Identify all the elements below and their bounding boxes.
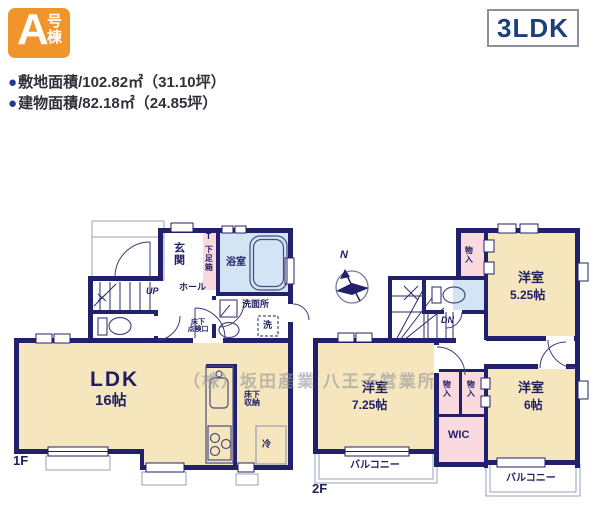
closet-door-a: [481, 378, 490, 389]
bedroom3-name-label: 洋室: [518, 381, 544, 395]
fridge-label: 冷: [262, 440, 271, 449]
bedroom3-size-label: 6帖: [524, 399, 543, 412]
shoebox-label: 下足箱: [204, 245, 212, 272]
washer-label: 洗: [263, 321, 272, 330]
watermark: （株）坂田産業 八王子営業所: [183, 367, 437, 392]
hall-label: ホール: [179, 283, 206, 292]
floor2-rooms: [318, 232, 577, 462]
floorplan-drawing: [0, 0, 600, 514]
ldk-size-label: 16帖: [95, 393, 127, 409]
closet-door-b: [481, 396, 490, 407]
toilet1-floor: [90, 312, 156, 340]
bedroom2-shutter-b: [356, 333, 372, 342]
kitchen-back-door: [238, 463, 254, 472]
washroom-label: 洗面所: [242, 300, 269, 309]
front-door: [171, 223, 193, 232]
closet-top-door-b: [484, 262, 494, 274]
bedroom1-shutter-a: [498, 224, 516, 233]
underfloor-storage-label: 床下 収納: [239, 391, 265, 408]
ldk-south-window-b: [146, 463, 184, 472]
compass-wings: [336, 283, 369, 295]
bedroom1-floor: [488, 232, 577, 338]
underfloor-access-label: 床下 点検口: [182, 319, 214, 334]
bedroom2-shutter-a: [338, 333, 354, 342]
bath-folding-door-b: [235, 226, 246, 233]
floor2-label: 2F: [312, 482, 327, 496]
closet-top-label: 物入: [464, 246, 472, 264]
bedroom2-size-label: 7.25帖: [352, 399, 387, 412]
bedroom1-shutter-b: [520, 224, 538, 233]
bathroom-window: [285, 258, 294, 284]
bedroom3-balcony-window: [497, 458, 545, 467]
bathroom-label: 浴室: [226, 258, 246, 269]
compass-n-label: N: [340, 250, 348, 262]
stairs-down-label: DN: [441, 316, 454, 325]
closet-a-label: 物入: [442, 380, 450, 398]
closet-b-label: 物入: [466, 380, 474, 398]
closet-top-door-a: [484, 240, 494, 252]
wic-label: WIC: [448, 430, 469, 442]
bedroom1-name-label: 洋室: [518, 271, 544, 285]
floorplan-page: A 号棟 3LDK ●敷地面積/102.82㎡（31.10坪） ●建物面積/82…: [0, 0, 600, 514]
floor1-label: 1F: [13, 454, 28, 468]
terrace-b: [142, 472, 186, 485]
bedroom3-side-window: [578, 381, 588, 399]
balcony-left-label: バルコニー: [350, 461, 400, 472]
ldk-shutter-window-b: [54, 334, 70, 343]
ldk-shutter-window-a: [36, 334, 52, 343]
bedroom2-floor: [318, 343, 436, 451]
entrance-porch: [92, 221, 164, 280]
compass: [336, 269, 369, 303]
bedroom1-side-window: [578, 263, 588, 281]
stairs-up-label: UP: [146, 287, 159, 296]
hall2-passage-floor: [486, 340, 576, 366]
back-door-arc: [293, 304, 309, 320]
terrace-a: [46, 456, 110, 470]
genkan-label: 玄関: [172, 242, 184, 266]
kitchen-step: [236, 474, 258, 485]
ldk-name-label: LDK: [90, 369, 139, 391]
shoebox-top-label: T: [206, 233, 211, 241]
bath-folding-door-a: [222, 226, 233, 233]
balcony-right-label: バルコニー: [506, 474, 556, 485]
bedroom1-size-label: 5.25帖: [510, 289, 545, 302]
